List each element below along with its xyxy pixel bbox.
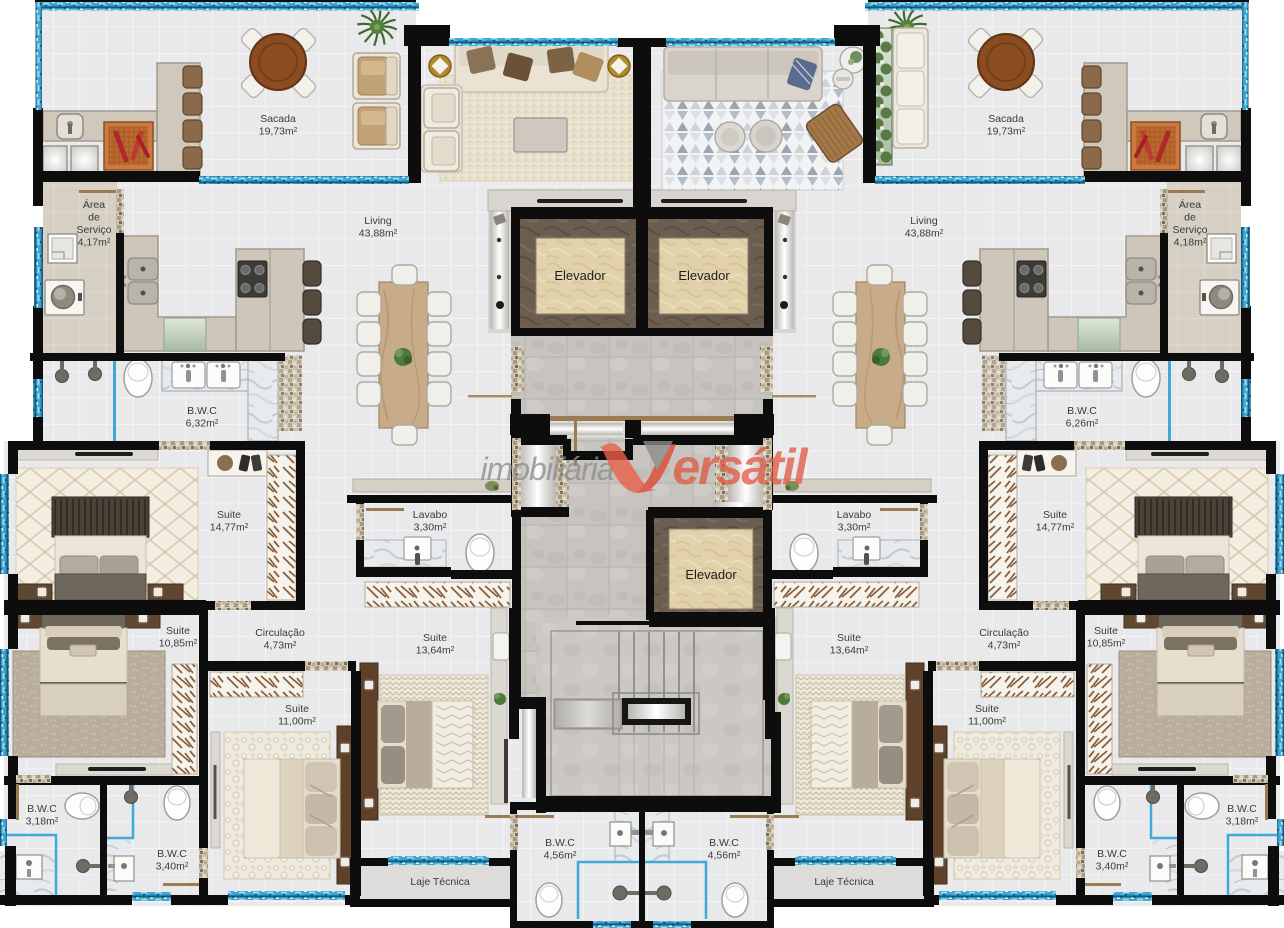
- svg-text:Circulação: Circulação: [255, 627, 305, 639]
- svg-text:13,64m²: 13,64m²: [416, 645, 455, 657]
- svg-text:Suite: Suite: [837, 632, 861, 644]
- svg-text:B.W.C: B.W.C: [27, 803, 57, 815]
- svg-text:Sacada: Sacada: [988, 113, 1024, 125]
- svg-text:4,56m²: 4,56m²: [544, 850, 577, 862]
- svg-text:6,32m²: 6,32m²: [186, 418, 219, 430]
- svg-text:Área: Área: [83, 198, 105, 211]
- svg-text:Laje Técnica: Laje Técnica: [814, 876, 874, 888]
- svg-text:11,00m²: 11,00m²: [278, 716, 316, 728]
- svg-text:B.W.C: B.W.C: [709, 837, 739, 849]
- svg-text:3,40m²: 3,40m²: [1096, 861, 1129, 873]
- svg-text:B.W.C: B.W.C: [157, 848, 187, 860]
- svg-text:3,18m²: 3,18m²: [26, 816, 59, 828]
- svg-text:Lavabo: Lavabo: [413, 509, 448, 521]
- svg-text:B.W.C: B.W.C: [187, 405, 217, 417]
- svg-text:Living: Living: [364, 215, 392, 227]
- svg-text:de: de: [88, 212, 100, 224]
- svg-text:14,77m²: 14,77m²: [1036, 522, 1075, 534]
- svg-text:4,18m²: 4,18m²: [1174, 237, 1207, 249]
- svg-text:43,88m²: 43,88m²: [905, 228, 944, 240]
- svg-text:Área: Área: [1179, 198, 1201, 211]
- svg-text:B.W.C: B.W.C: [1067, 405, 1097, 417]
- svg-text:de: de: [1184, 212, 1196, 224]
- svg-text:Sacada: Sacada: [260, 113, 296, 125]
- svg-text:4,17m²: 4,17m²: [78, 237, 111, 249]
- svg-text:3,30m²: 3,30m²: [414, 522, 447, 534]
- svg-text:4,73m²: 4,73m²: [988, 640, 1021, 652]
- svg-text:3,18m²: 3,18m²: [1226, 816, 1259, 828]
- svg-text:6,26m²: 6,26m²: [1066, 418, 1099, 430]
- svg-text:Elevador: Elevador: [554, 268, 606, 283]
- svg-text:13,64m²: 13,64m²: [830, 645, 869, 657]
- svg-text:Suite: Suite: [1043, 509, 1067, 521]
- svg-text:10,85m²: 10,85m²: [1087, 638, 1126, 650]
- svg-text:imobiliária: imobiliária: [480, 451, 613, 487]
- svg-text:Lavabo: Lavabo: [837, 509, 872, 521]
- svg-text:Serviço: Serviço: [1172, 224, 1207, 236]
- svg-text:19,73m²: 19,73m²: [987, 126, 1026, 138]
- svg-text:3,40m²: 3,40m²: [156, 861, 189, 873]
- svg-text:3,30m²: 3,30m²: [838, 522, 871, 534]
- svg-text:Circulação: Circulação: [979, 627, 1029, 639]
- svg-text:Suite: Suite: [423, 632, 447, 644]
- svg-text:Serviço: Serviço: [76, 224, 111, 236]
- svg-text:Living: Living: [910, 215, 938, 227]
- svg-text:19,73m²: 19,73m²: [259, 126, 298, 138]
- svg-text:Suite: Suite: [975, 703, 999, 715]
- svg-text:4,73m²: 4,73m²: [264, 640, 297, 652]
- svg-text:Suite: Suite: [217, 509, 241, 521]
- svg-text:Suite: Suite: [285, 703, 309, 715]
- svg-text:Elevador: Elevador: [685, 567, 737, 582]
- svg-text:Suite: Suite: [1094, 625, 1118, 637]
- svg-text:11,00m²: 11,00m²: [968, 716, 1006, 728]
- svg-text:B.W.C: B.W.C: [1097, 848, 1127, 860]
- svg-text:B.W.C: B.W.C: [1227, 803, 1257, 815]
- svg-text:Suite: Suite: [166, 625, 190, 637]
- svg-text:43,88m²: 43,88m²: [359, 228, 398, 240]
- svg-text:4,56m²: 4,56m²: [708, 850, 741, 862]
- svg-text:Laje Técnica: Laje Técnica: [410, 876, 470, 888]
- svg-text:10,85m²: 10,85m²: [159, 638, 198, 650]
- svg-text:Elevador: Elevador: [678, 268, 730, 283]
- svg-text:B.W.C: B.W.C: [545, 837, 575, 849]
- svg-text:14,77m²: 14,77m²: [210, 522, 249, 534]
- svg-text:ersátil: ersátil: [672, 439, 808, 495]
